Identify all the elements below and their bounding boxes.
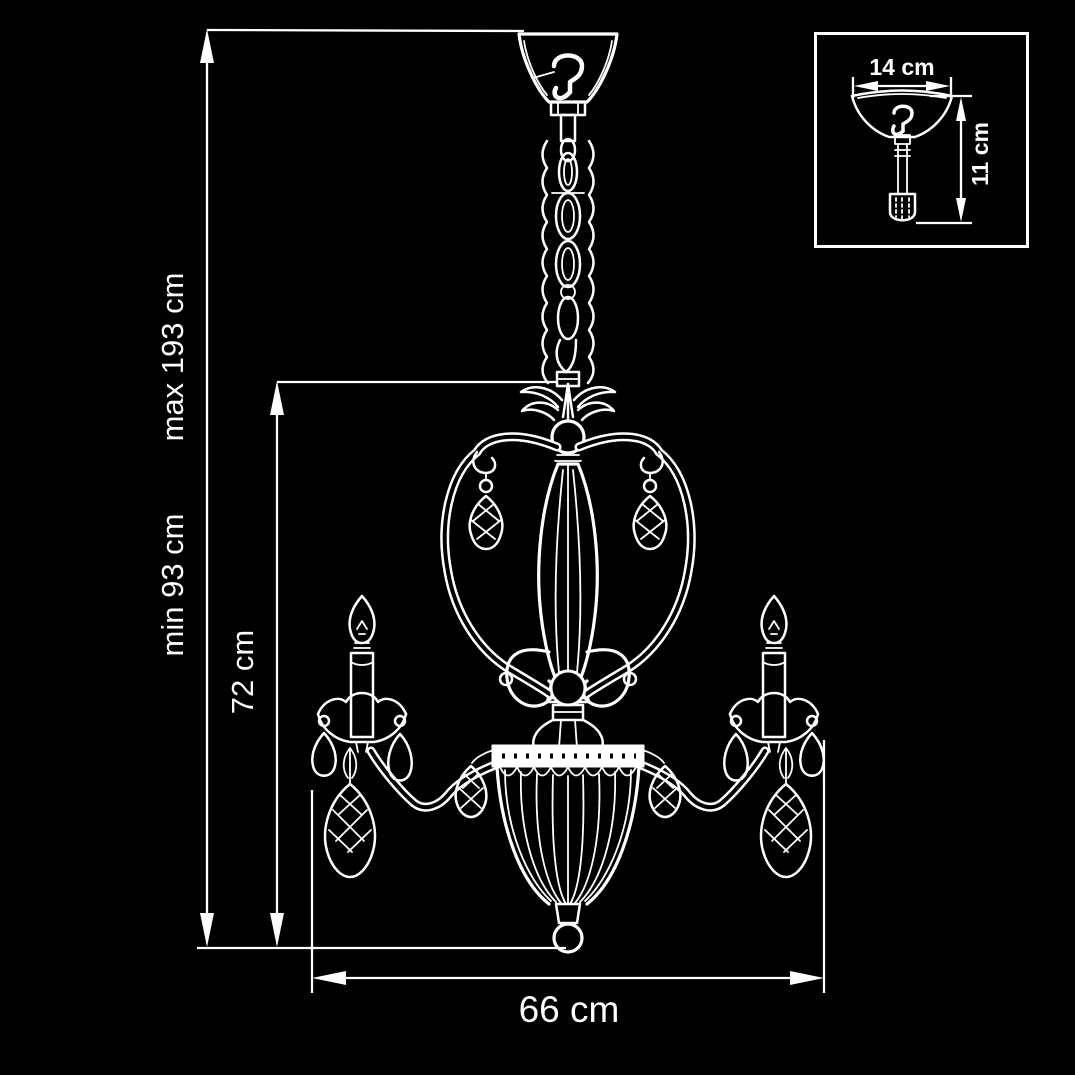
chandelier-drawing — [312, 34, 823, 952]
crystal-pendant-upper — [470, 473, 503, 549]
label-body-height: 72 cm — [225, 630, 260, 714]
side-assembly — [312, 437, 557, 877]
diagram-canvas: max 193 cm min 93 cm 72 cm 66 cm — [0, 0, 1075, 1075]
inset-canopy-drawing — [852, 91, 952, 221]
basket-bowl — [492, 745, 644, 952]
inset-dimension-height: 11 cm — [916, 96, 993, 223]
label-width: 66 cm — [519, 989, 620, 1030]
candle — [350, 596, 375, 737]
central-column — [539, 421, 598, 702]
ceiling-canopy — [519, 34, 617, 141]
label-inset-height: 11 cm — [967, 122, 993, 186]
label-inset-width: 14 cm — [869, 54, 934, 80]
inset-hook-icon — [893, 106, 912, 134]
label-height-min: min 93 cm — [155, 514, 190, 657]
central-hub — [533, 671, 602, 750]
chandelier-dimension-diagram: max 193 cm min 93 cm 72 cm 66 cm — [0, 0, 1075, 1075]
inset-canopy-detail: 14 cm 11 cm — [816, 34, 1028, 247]
label-height-max: max 193 cm — [155, 273, 190, 442]
leaf-crown — [521, 384, 615, 421]
dimension-width: 66 cm — [197, 740, 824, 1030]
chain — [543, 139, 594, 386]
dimension-total-height: max 193 cm min 93 cm — [155, 29, 524, 947]
crystal-drop-large — [325, 748, 375, 877]
